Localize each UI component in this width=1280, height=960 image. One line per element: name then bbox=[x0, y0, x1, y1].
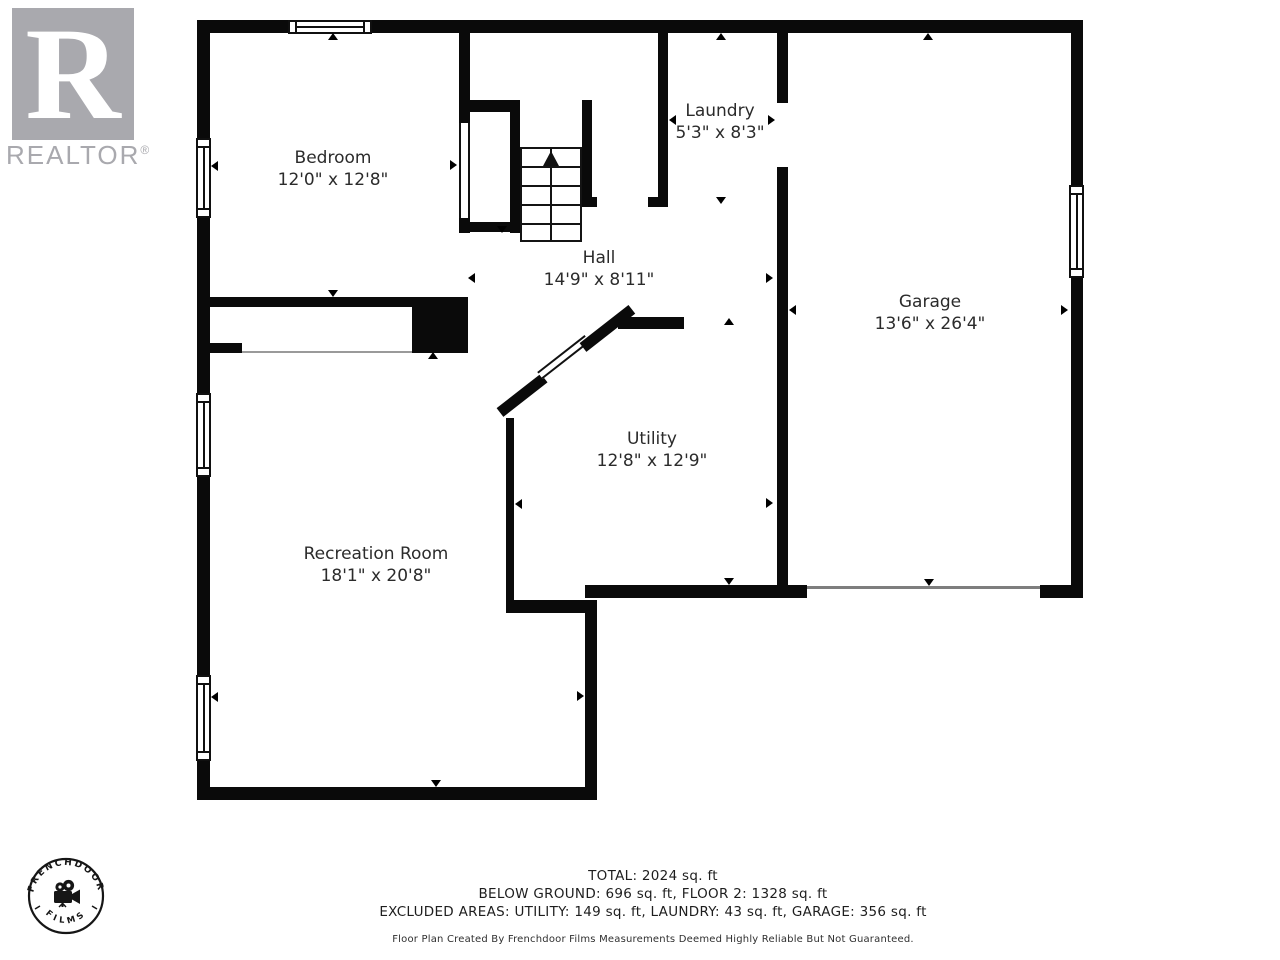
window-cap bbox=[295, 22, 297, 32]
window-cap bbox=[1071, 193, 1082, 195]
measure-arrow-up bbox=[716, 33, 726, 40]
window-cap bbox=[198, 683, 209, 685]
room-dimensions: 12'8" x 12'9" bbox=[597, 450, 708, 472]
measure-arrow-left bbox=[789, 305, 796, 315]
measure-arrow-left bbox=[468, 273, 475, 283]
bedroom-top-window bbox=[288, 20, 372, 34]
stamp-tick-left bbox=[35, 906, 40, 909]
room-label-laundry: Laundry 5'3" x 8'3" bbox=[675, 100, 764, 144]
rec-left-window-upper bbox=[196, 393, 211, 477]
realtor-logo-letter: R bbox=[25, 14, 120, 134]
window-cap bbox=[198, 208, 209, 210]
wall-utility-diagonal-lower bbox=[497, 374, 548, 417]
garage-door-line bbox=[807, 586, 1040, 589]
realtor-logo: R bbox=[12, 8, 134, 140]
wall-bedroom-right-stub bbox=[459, 218, 470, 233]
room-dimensions: 13'6" x 26'4" bbox=[875, 313, 986, 335]
wall-closet-stub-left bbox=[197, 343, 242, 353]
window-pane-line bbox=[1076, 194, 1078, 269]
room-label-garage: Garage 13'6" x 26'4" bbox=[875, 291, 986, 335]
measure-arrow-down bbox=[431, 780, 441, 787]
window-cap bbox=[198, 401, 209, 403]
window-cap bbox=[198, 146, 209, 148]
svg-text:FILMS: FILMS bbox=[43, 908, 88, 926]
realtor-wordmark: REALTOR® bbox=[6, 140, 156, 171]
room-dimensions: 5'3" x 8'3" bbox=[675, 122, 764, 144]
measure-arrow-down bbox=[497, 226, 507, 233]
room-dimensions: 14'9" x 8'11" bbox=[544, 269, 655, 291]
measure-arrow-left bbox=[211, 161, 218, 171]
room-name: Bedroom bbox=[278, 147, 389, 169]
window-pane-line bbox=[203, 402, 205, 468]
window-cap bbox=[1071, 268, 1082, 270]
room-name: Garage bbox=[875, 291, 986, 313]
wall-laundry-garage-lower bbox=[777, 167, 788, 588]
garage-right-window bbox=[1069, 185, 1084, 278]
wall-utility-bottom-left bbox=[506, 600, 597, 613]
measure-arrow-up bbox=[923, 33, 933, 40]
room-label-bedroom: Bedroom 12'0" x 12'8" bbox=[278, 147, 389, 191]
rec-closet-opening-line bbox=[242, 351, 412, 353]
measure-arrow-down bbox=[328, 290, 338, 297]
wall-utility-left bbox=[506, 418, 514, 613]
window-pane-line bbox=[203, 684, 205, 752]
wall-laundry-left bbox=[658, 33, 668, 207]
staircase bbox=[520, 147, 582, 242]
registered-trademark-symbol: ® bbox=[140, 143, 149, 157]
window-pane-line bbox=[296, 26, 364, 28]
bedroom-closet-door-opening bbox=[459, 123, 470, 218]
wall-rec-right bbox=[585, 600, 597, 800]
measure-arrow-down bbox=[924, 579, 934, 586]
footer-excluded-areas: EXCLUDED AREAS: UTILITY: 149 sq. ft, LAU… bbox=[13, 903, 1280, 921]
measure-arrow-up bbox=[328, 33, 338, 40]
measure-arrow-right bbox=[450, 160, 457, 170]
footer-total-area: TOTAL: 2024 sq. ft bbox=[13, 867, 1280, 885]
wall-rec-bottom bbox=[197, 787, 597, 800]
wall-closet-block bbox=[412, 297, 468, 353]
measure-arrow-up bbox=[724, 318, 734, 325]
room-dimensions: 12'0" x 12'8" bbox=[278, 169, 389, 191]
wall-garage-right bbox=[1071, 20, 1083, 598]
floor-plan-page: R REALTOR® bbox=[0, 0, 1280, 960]
footer-floor-areas: BELOW GROUND: 696 sq. ft, FLOOR 2: 1328 … bbox=[13, 885, 1280, 903]
measure-arrow-up bbox=[428, 352, 438, 359]
room-name: Hall bbox=[544, 247, 655, 269]
footer-disclaimer: Floor Plan Created By Frenchdoor Films M… bbox=[13, 931, 1280, 949]
frenchdoor-films-stamp: FRENCHDOOR FILMS bbox=[24, 854, 108, 938]
wall-stairwell-right-stub bbox=[582, 197, 597, 207]
room-name: Recreation Room bbox=[304, 543, 449, 565]
room-label-utility: Utility 12'8" x 12'9" bbox=[597, 428, 708, 472]
measure-arrow-right bbox=[766, 273, 773, 283]
window-pane-line bbox=[203, 147, 205, 209]
measure-arrow-down bbox=[716, 197, 726, 204]
wall-utility-bottom-right bbox=[585, 585, 807, 598]
wall-stairwell-right bbox=[582, 100, 592, 200]
wall-laundry-garage-upper bbox=[777, 33, 788, 103]
room-name: Utility bbox=[597, 428, 708, 450]
measure-arrow-right bbox=[1061, 305, 1068, 315]
measure-arrow-left bbox=[515, 499, 522, 509]
wall-bedroom-right-upper bbox=[459, 33, 470, 123]
room-label-hall: Hall 14'9" x 8'11" bbox=[544, 247, 655, 291]
window-cap bbox=[198, 751, 209, 753]
measure-arrow-down bbox=[724, 578, 734, 585]
room-label-recreation-room: Recreation Room 18'1" x 20'8" bbox=[304, 543, 449, 587]
room-dimensions: 18'1" x 20'8" bbox=[304, 565, 449, 587]
stamp-tick-right bbox=[92, 906, 97, 909]
stamp-text-bottom: FILMS bbox=[43, 908, 88, 926]
rec-left-window-lower bbox=[196, 675, 211, 761]
measure-arrow-right bbox=[766, 498, 773, 508]
window-cap bbox=[363, 22, 365, 32]
room-name: Laundry bbox=[675, 100, 764, 122]
measure-arrow-right bbox=[577, 691, 584, 701]
bedroom-left-window bbox=[196, 138, 211, 218]
wall-stair-closet-bottom bbox=[470, 222, 520, 232]
movie-camera-icon bbox=[54, 880, 80, 907]
stair-up-arrow-icon bbox=[543, 151, 559, 166]
measure-arrow-left bbox=[211, 692, 218, 702]
measure-arrow-right bbox=[768, 115, 775, 125]
window-cap bbox=[198, 467, 209, 469]
wall-stair-closet-inner bbox=[510, 100, 520, 233]
